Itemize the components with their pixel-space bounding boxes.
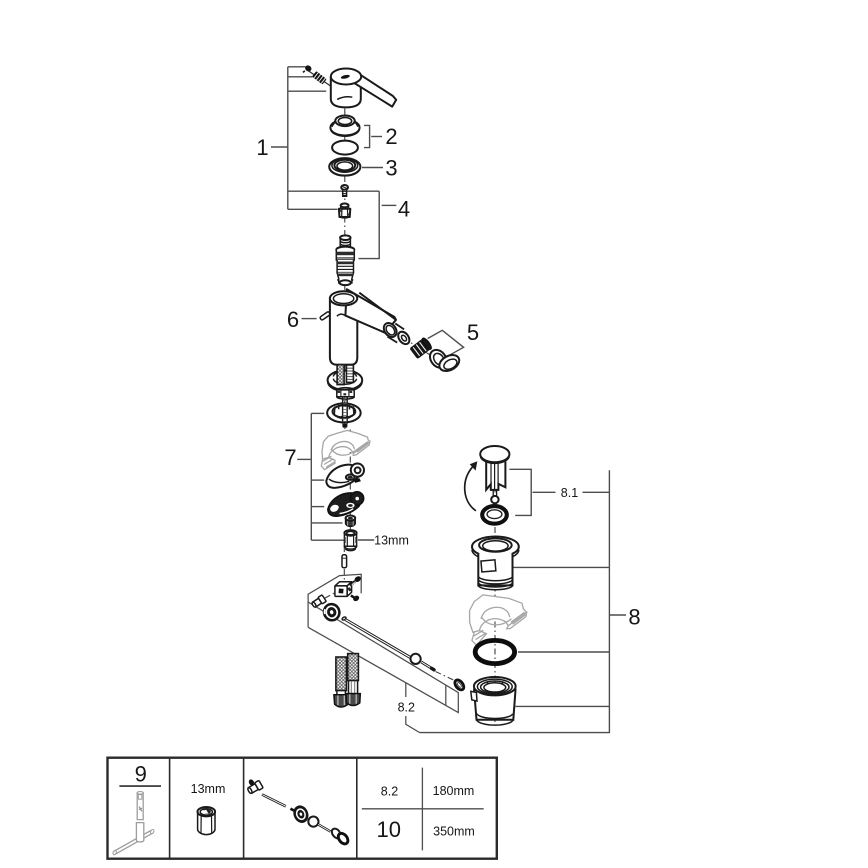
svg-text:10: 10 (377, 817, 401, 842)
svg-text:5: 5 (467, 320, 479, 345)
svg-text:6: 6 (287, 307, 299, 332)
svg-text:13mm: 13mm (191, 782, 226, 796)
svg-text:9: 9 (135, 762, 147, 787)
svg-text:8: 8 (628, 605, 640, 630)
svg-text:3: 3 (385, 156, 397, 181)
svg-text:1: 1 (256, 135, 268, 160)
svg-text:8.1: 8.1 (561, 486, 578, 500)
svg-text:2: 2 (385, 124, 397, 149)
svg-text:350mm: 350mm (433, 825, 475, 839)
svg-text:8.2: 8.2 (398, 701, 415, 715)
svg-text:8.2: 8.2 (381, 785, 398, 799)
svg-text:4: 4 (398, 197, 410, 222)
svg-text:180mm: 180mm (433, 784, 475, 798)
svg-text:7: 7 (284, 445, 296, 470)
svg-text:13mm: 13mm (374, 534, 409, 548)
